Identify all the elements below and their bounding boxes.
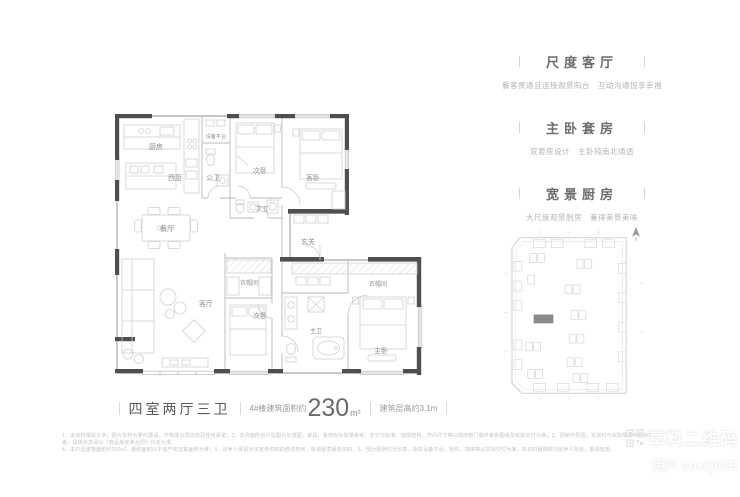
room-label-bedroom3: 次卧: [253, 311, 267, 320]
feature-master-suite: 主卧套房 双套房设计 主卧纯南北通透: [492, 118, 672, 157]
caption-divider: [446, 402, 447, 415]
highlighted-unit-block: [534, 315, 554, 324]
qr-code-icon: [626, 429, 644, 447]
room-label-cloakroom-left: 衣帽间: [240, 279, 258, 287]
title-bar-right: [644, 56, 645, 67]
room-label-kitchen: 厨房: [149, 142, 163, 151]
title-bar-left: [519, 56, 520, 67]
layout-name: 四室两厅三卫: [129, 399, 231, 419]
area-unit: m²: [350, 408, 361, 418]
watermark: 草料二维码 用户 coxQ04B: [626, 425, 738, 474]
room-label-bedroom2: 次卧: [253, 166, 267, 175]
kitchen-furniture: [124, 119, 199, 193]
feature-panel: 尺度客厅 餐客贯通且连接观景阳台 互动沟通悦享幸福 主卧套房 双套房设计 主卧纯…: [492, 52, 672, 250]
title-bar-left: [519, 122, 520, 133]
equipment-platform-units: [206, 120, 225, 126]
feature-title: 尺度客厅: [546, 52, 618, 71]
room-label-west-kitchen: 西厨: [168, 174, 182, 182]
room-label-master-bath: 主卫: [310, 327, 322, 335]
windows: [116, 114, 422, 375]
structural-walls: [115, 114, 421, 375]
disclaimer-line1: 1、本资料相关文字、图片仅作为要约邀请，不构成合同内容及任何承诺；2、本页面所示…: [62, 433, 664, 447]
area-value: 230: [307, 396, 349, 421]
cloakroom-right-units: [292, 263, 417, 285]
room-label-foyer: 玄关: [301, 237, 315, 246]
caption-divider: [119, 402, 120, 415]
disclaimer-line2: 4、本户型建筑面积约230㎡，最终面积以不动产权证载面积为准；5、出卖人保留对本…: [62, 447, 664, 454]
cloakroom-left-units: [227, 260, 271, 295]
watermark-brand: 草料二维码: [648, 425, 738, 450]
floor-height-note: 建筑层高约3.1m: [380, 403, 438, 414]
title-bar-right: [644, 188, 645, 199]
bedroom2-furniture: [236, 123, 281, 173]
feature-desc: 餐客贯通且连接观景阳台 互动沟通悦享幸福: [492, 80, 672, 91]
title-bar-right: [644, 122, 645, 133]
room-label-public-bath: 公卫: [206, 174, 220, 182]
interior-walls: [202, 116, 348, 369]
feature-title: 主卧套房: [546, 118, 618, 137]
room-label-dining: 餐厅: [160, 224, 174, 233]
room-label-master-bedroom: 主卧: [374, 346, 388, 355]
site-plate-diagram: [500, 224, 648, 406]
feature-title: 宽景厨房: [546, 184, 618, 203]
legal-disclaimer: 1、本资料相关文字、图片仅作为要约邀请，不构成合同内容及任何承诺；2、本页面所示…: [62, 433, 664, 454]
foyer-cabinets: [294, 215, 328, 223]
room-label-bath2: 次卫: [256, 205, 268, 213]
title-bar-left: [519, 188, 520, 199]
guest-bedroom-furniture: [293, 129, 345, 209]
watermark-user: 用户 coxQ04B: [626, 455, 738, 474]
caption-divider: [240, 402, 241, 415]
feature-kitchen: 宽景厨房 大尺度观景厨房 兼得美景美味: [492, 184, 672, 223]
room-label-guest-bedroom: 客卧: [306, 173, 320, 182]
room-label-cloakroom-right: 衣帽间: [369, 280, 387, 288]
outer-wall-outline: [117, 116, 420, 373]
caption-divider: [370, 402, 371, 415]
room-label-living: 客厅: [199, 299, 213, 308]
feature-desc: 大尺度观景厨房 兼得美景美味: [492, 212, 672, 223]
living-furniture: [122, 259, 208, 367]
area-prefix: 4#楼建筑面积约: [250, 403, 307, 414]
feature-desc: 双套房设计 主卧纯南北通透: [492, 146, 672, 157]
floorplan-drawing: 厨房 设备平台 西厨 公卫 次卧 客卧 次卫 餐厅 玄关 衣帽间 客厅 次卧 主…: [110, 103, 470, 403]
room-label-equipment-platform: 设备平台: [206, 132, 227, 140]
feature-living: 尺度客厅 餐客贯通且连接观景阳台 互动沟通悦享幸福: [492, 52, 672, 91]
caption-bar: 四室两厅三卫 4#楼建筑面积约 230 m² 建筑层高约3.1m: [88, 396, 478, 421]
north-arrow-icon: [632, 227, 640, 241]
